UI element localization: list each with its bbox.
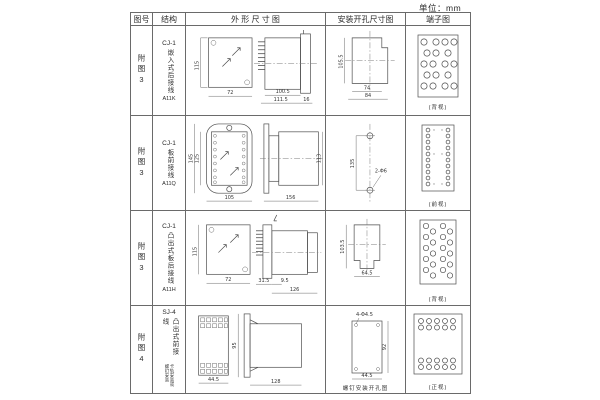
row3-figure-no: 附图3 <box>131 211 153 306</box>
dim-front-width: 44.5 <box>207 377 218 383</box>
mounting-caption: 螺钉安装开孔图 <box>343 384 389 392</box>
row1-figure-no: 附图3 <box>131 26 153 116</box>
row1-structure: CJ-1 嵌入式后接线 A11K <box>153 26 186 116</box>
dim-cutout-h2: 84 <box>364 93 370 99</box>
dim-cutout-v: 103.5 <box>340 240 346 254</box>
dim-side-d3: 16 <box>303 97 309 103</box>
figure-no-label: 附图3 <box>136 242 147 275</box>
row4-terminal-diagram: (正视) <box>406 306 471 394</box>
dim-side-height: 113 <box>316 154 322 163</box>
model-label: CJ-1 <box>162 40 176 47</box>
dim-cutout-v: 105.5 <box>338 55 344 69</box>
dim-side-d2: 111.5 <box>273 97 287 103</box>
dim-front-width: 105 <box>224 195 233 201</box>
row4-mounting-drawing: 4-Φ4.5 92 44.5 螺钉安装开孔图 <box>326 306 406 394</box>
dim-side-d2: 9.5 <box>280 278 288 284</box>
outline-drawing-svg: 115 72 31.5 9.5 126 <box>186 211 326 305</box>
terminal-view-caption: (正视) <box>429 383 448 391</box>
dim-side-width: 156 <box>285 195 294 201</box>
row3-structure: CJ-1 凸出式板后接线 A11H <box>153 211 186 306</box>
row2-mounting-drawing: 135 2-Φ6 <box>326 116 406 211</box>
mounting-note: 卡轨安装或螺钉安装 <box>164 364 174 390</box>
terminal-diagram-svg <box>406 30 471 102</box>
mounting-drawing-svg: 105.5 74 84 <box>326 26 406 115</box>
header-mounting: 安装开孔尺寸图 <box>326 13 406 26</box>
dim-front-width: 72 <box>225 277 231 283</box>
terminal-diagram-svg <box>406 119 471 199</box>
row2-terminal-diagram: (前视) <box>406 116 471 211</box>
model-label: SJ-4 <box>162 309 175 316</box>
model-label: CJ-1 <box>162 223 176 230</box>
row1-mounting-drawing: 105.5 74 84 <box>326 26 406 116</box>
row2-structure: CJ-1 板前接线 A11Q <box>153 116 186 211</box>
terminal-diagram-svg <box>406 308 471 382</box>
structure-desc: 凸出式板后接线 <box>164 232 174 285</box>
header-outline: 外 形 尺 寸 图 <box>186 13 326 26</box>
document-page: 单位：mm 图号 结构 外 形 尺 寸 图 安装开孔尺寸图 端子图 附图3 CJ… <box>0 0 600 400</box>
row4-figure-no: 附图4 <box>131 306 153 394</box>
dim-front-height: 115 <box>194 61 200 70</box>
dim-side-height: 95 <box>232 342 238 348</box>
structure-desc: 板前接线 <box>164 149 174 179</box>
dim-cutout-h: 64.5 <box>361 270 372 276</box>
structure-desc: 嵌入式后接线 <box>164 49 174 94</box>
dim-hole-spacing: 135 <box>350 159 356 168</box>
outline-drawing-svg: 44.5 95 128 <box>186 306 326 393</box>
dim-side-d1: 31.5 <box>258 278 269 284</box>
row3-terminal-diagram: (背视) <box>406 211 471 306</box>
row2-outline-drawing: 145 125 105 156 113 <box>186 116 326 211</box>
header-figure-no: 图号 <box>131 13 153 26</box>
row4-outline-drawing: 44.5 95 128 <box>186 306 326 394</box>
figure-no-label: 附图4 <box>136 333 147 366</box>
terminal-view-caption: (前视) <box>429 200 448 208</box>
spec-table: 图号 结构 外 形 尺 寸 图 安装开孔尺寸图 端子图 附图3 CJ-1 嵌入式… <box>130 12 471 394</box>
hole-spec-label: 2-Φ6 <box>374 168 386 174</box>
dim-cutout-v: 92 <box>382 344 388 350</box>
dim-cutout-h1: 74 <box>363 85 369 91</box>
header-structure: 结构 <box>153 13 186 26</box>
row3-mounting-drawing: 103.5 64.5 <box>326 211 406 306</box>
terminal-view-caption: (背视) <box>429 295 448 303</box>
structure-desc: 凸出式前接线 <box>159 318 179 362</box>
dim-side-d3: 126 <box>289 287 298 293</box>
row1-outline-drawing: 115 72 100.5 111.5 16 <box>186 26 326 116</box>
mounting-drawing-svg: 103.5 64.5 <box>326 211 406 305</box>
dim-front-height: 115 <box>192 247 198 256</box>
structure-code: A11H <box>162 287 175 293</box>
model-label: CJ-1 <box>162 140 176 147</box>
figure-no-label: 附图3 <box>136 54 147 87</box>
dim-cutout-h: 44.5 <box>361 373 372 379</box>
terminal-diagram-svg <box>406 214 471 294</box>
mounting-drawing-svg: 4-Φ4.5 92 44.5 <box>326 307 406 383</box>
structure-code: A11Q <box>162 181 176 187</box>
row2-figure-no: 附图3 <box>131 116 153 211</box>
hole-spec-label: 4-Φ4.5 <box>356 312 373 318</box>
row4-structure: SJ-4 凸出式前接线 卡轨安装或螺钉安装 <box>153 306 186 394</box>
dim-side-d1: 100.5 <box>275 89 289 95</box>
figure-no-label: 附图3 <box>136 147 147 180</box>
header-terminal: 端子图 <box>406 13 471 26</box>
dim-front-width: 72 <box>227 90 233 96</box>
terminal-view-caption: (背视) <box>429 103 448 111</box>
outline-drawing-svg: 145 125 105 156 113 <box>186 116 326 210</box>
mounting-drawing-svg: 135 2-Φ6 <box>326 116 406 210</box>
outline-drawing-svg: 115 72 100.5 111.5 16 <box>186 26 326 115</box>
row3-outline-drawing: 115 72 31.5 9.5 126 <box>186 211 326 306</box>
structure-code: A11K <box>162 96 175 102</box>
dim-front-h2: 125 <box>194 154 200 163</box>
row1-terminal-diagram: (背视) <box>406 26 471 116</box>
dim-side-width: 128 <box>271 379 280 385</box>
